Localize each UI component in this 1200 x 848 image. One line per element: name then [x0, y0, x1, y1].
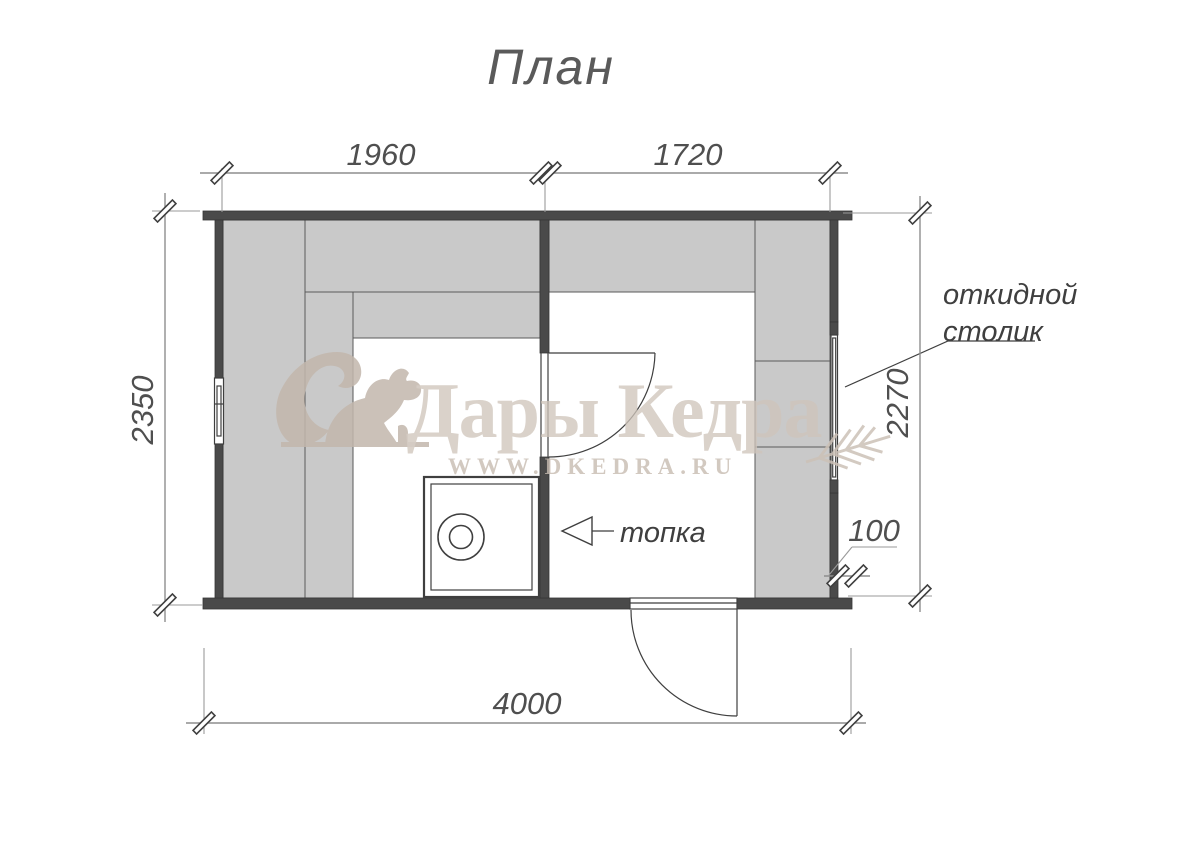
dim-1720-label: 1720 [654, 137, 723, 172]
folding-table [830, 322, 838, 493]
dimension-right: 2270 [843, 196, 932, 612]
dim-1960-label: 1960 [347, 137, 416, 172]
dim-2350-label: 2350 [125, 376, 160, 446]
firebox-label: топка [620, 517, 706, 549]
bench-top-right-room [549, 220, 755, 292]
floor-plan-canvas: План [0, 0, 1200, 848]
stove-body [424, 477, 539, 597]
dimension-bottom: 4000 [186, 648, 866, 734]
dim-100-label: 100 [848, 513, 900, 548]
folding-table-label-2: столик [943, 316, 1044, 348]
wall-right-upper [830, 220, 838, 322]
partition-upper [540, 220, 549, 353]
wall-top [203, 211, 852, 220]
wall-bottom-left-part [203, 598, 852, 609]
wall-left-lower [215, 443, 223, 598]
entry-door-swing [631, 610, 737, 716]
table-cap-bottom [830, 480, 838, 493]
entry-door [630, 598, 737, 716]
folding-table-label-1: откидной [943, 279, 1077, 311]
watermark-url-text: WWW.DKEDRA.RU [448, 454, 737, 479]
dim-4000-label: 4000 [493, 686, 562, 721]
stove [424, 477, 539, 597]
bench-top-upper-tier [305, 220, 540, 292]
page-title: План [487, 39, 615, 95]
dimension-top: 1960 1720 [200, 137, 848, 212]
bench-right-lower [755, 447, 830, 598]
floor-plan-page: План [0, 0, 1200, 848]
firebox-annotation: топка [562, 517, 706, 549]
bench-top-lower-tier [353, 292, 540, 338]
window-glass [217, 386, 221, 436]
table-cap-top [830, 322, 838, 335]
firebox-arrow-icon [562, 517, 592, 545]
wall-left-upper [215, 220, 223, 379]
dim-2270-label: 2270 [880, 369, 915, 439]
left-window [215, 378, 224, 444]
watermark-brand-text: Дары Кедра [406, 367, 821, 454]
bench-right-upper [755, 220, 830, 361]
dimension-left: 2350 [125, 193, 203, 622]
